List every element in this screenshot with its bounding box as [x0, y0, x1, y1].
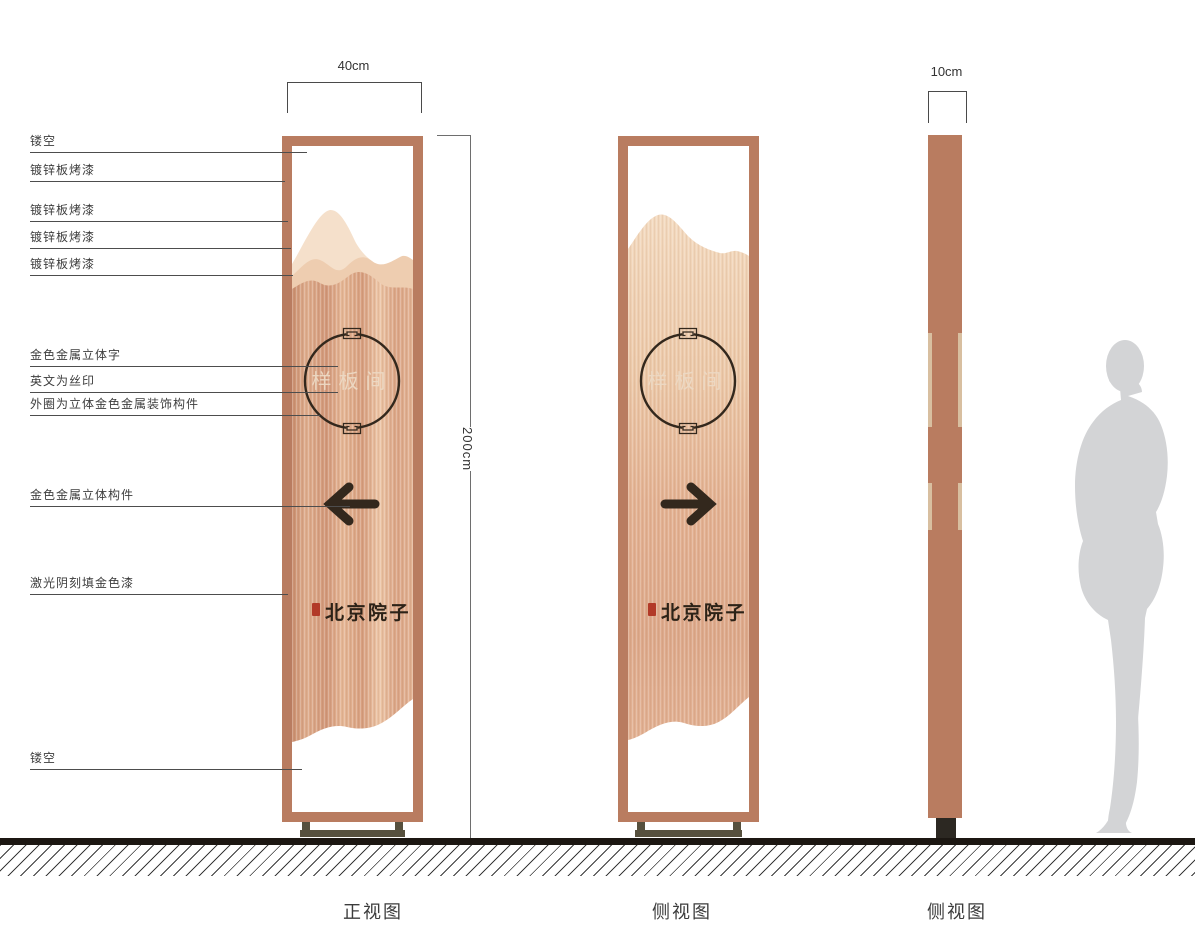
side-profile-base	[936, 818, 956, 839]
logo-text: 北京院子	[325, 601, 411, 624]
caption-side-back-view: 侧视图	[652, 898, 712, 924]
callout-hollow-top: 镂空	[30, 134, 307, 153]
person-silhouette	[1035, 338, 1180, 838]
seal-icon	[648, 603, 656, 616]
front-sign-base-bar	[300, 830, 405, 837]
side-back-sign-base-bar	[635, 830, 742, 837]
side-profile-panel	[928, 135, 962, 818]
caption-side-profile-view: 侧视图	[927, 898, 987, 924]
callout-galvanized-paint-4: 镀锌板烤漆	[30, 257, 293, 276]
dimension-front-width-bracket	[287, 82, 422, 113]
callout-gold-metal-arrow: 金色金属立体构件	[30, 488, 350, 507]
callout-gold-ring-component: 外圈为立体金色金属装饰构件	[30, 397, 320, 416]
copper-panel-brushed-texture	[628, 215, 749, 740]
dimension-height-tick	[437, 135, 470, 136]
logo-text: 北京院子	[661, 601, 747, 624]
side-profile-circle-relief	[928, 333, 932, 427]
side-profile-circle-relief	[958, 333, 962, 427]
dimension-side-width-label: 10cm	[920, 64, 973, 79]
brand-logo: 北京院子	[312, 601, 411, 624]
side-back-sign-artwork: 样板间 北京院子	[628, 146, 749, 812]
dimension-height-label: 200cm	[460, 427, 475, 471]
dimension-front-width-label: 40cm	[287, 58, 420, 73]
caption-front-view: 正视图	[343, 898, 403, 924]
drawing-canvas: 40cm 10cm 200cm	[0, 0, 1195, 927]
side-profile-arrow-relief	[958, 483, 962, 530]
callout-gold-metal-letters: 金色金属立体字	[30, 348, 338, 367]
front-sign-artwork: 样板间 北京院子	[292, 146, 413, 812]
callout-silkscreen-english: 英文为丝印	[30, 374, 338, 393]
callout-galvanized-paint-2: 镀锌板烤漆	[30, 203, 288, 222]
brand-logo: 北京院子	[648, 601, 747, 624]
front-view-sign: 样板间 北京院子	[282, 136, 423, 822]
side-back-view-sign: 样板间 北京院子	[618, 136, 759, 822]
ground-line	[0, 838, 1195, 845]
dimension-height-line	[470, 135, 471, 838]
ground-hatch	[0, 845, 1195, 876]
side-profile-arrow-relief	[928, 483, 932, 530]
dimension-side-width-bracket	[928, 91, 967, 123]
callout-galvanized-paint-3: 镀锌板烤漆	[30, 230, 291, 249]
seal-icon	[312, 603, 320, 616]
callout-galvanized-paint-1: 镀锌板烤漆	[30, 163, 285, 182]
silhouette-body	[1075, 378, 1168, 833]
plate-text: 样板间	[648, 370, 729, 393]
callout-hollow-bottom: 镂空	[30, 751, 302, 770]
callout-laser-engraved-gold: 激光阴刻填金色漆	[30, 576, 288, 595]
